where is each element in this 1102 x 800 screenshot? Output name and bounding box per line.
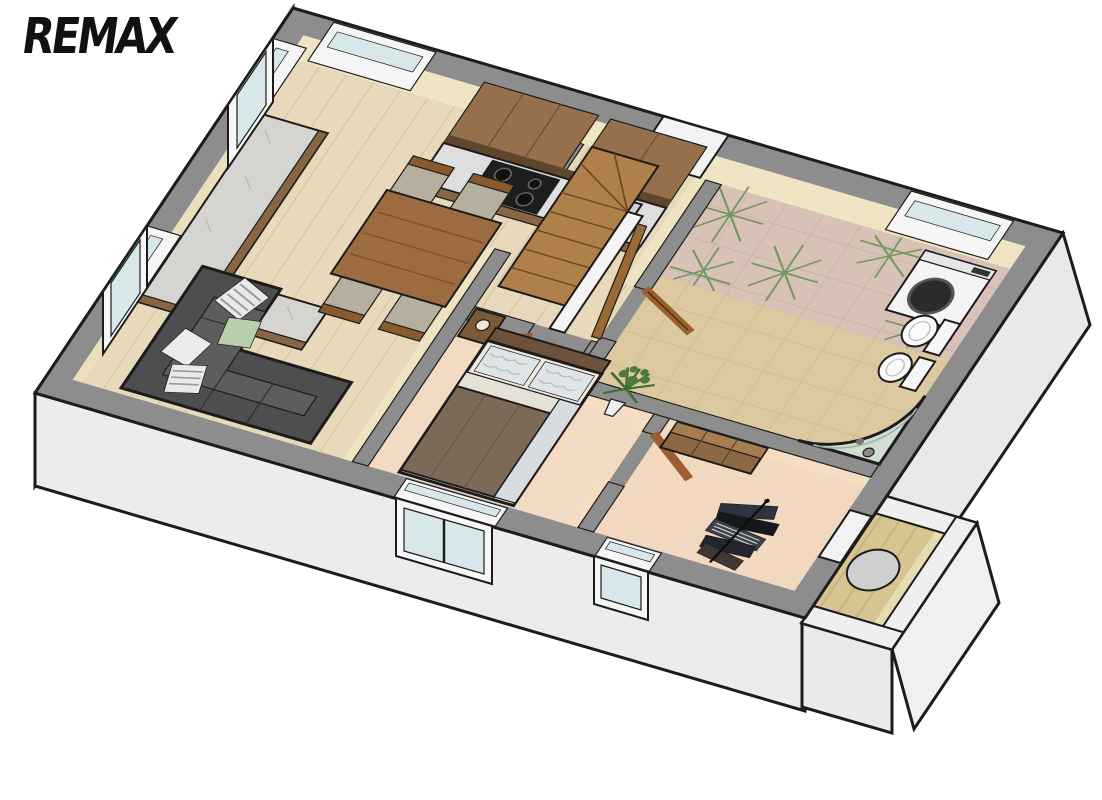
floor-plan-svg bbox=[0, 0, 1102, 800]
floor-plan-render: REMAX bbox=[0, 0, 1102, 800]
remax-logo: REMAX bbox=[19, 12, 178, 61]
